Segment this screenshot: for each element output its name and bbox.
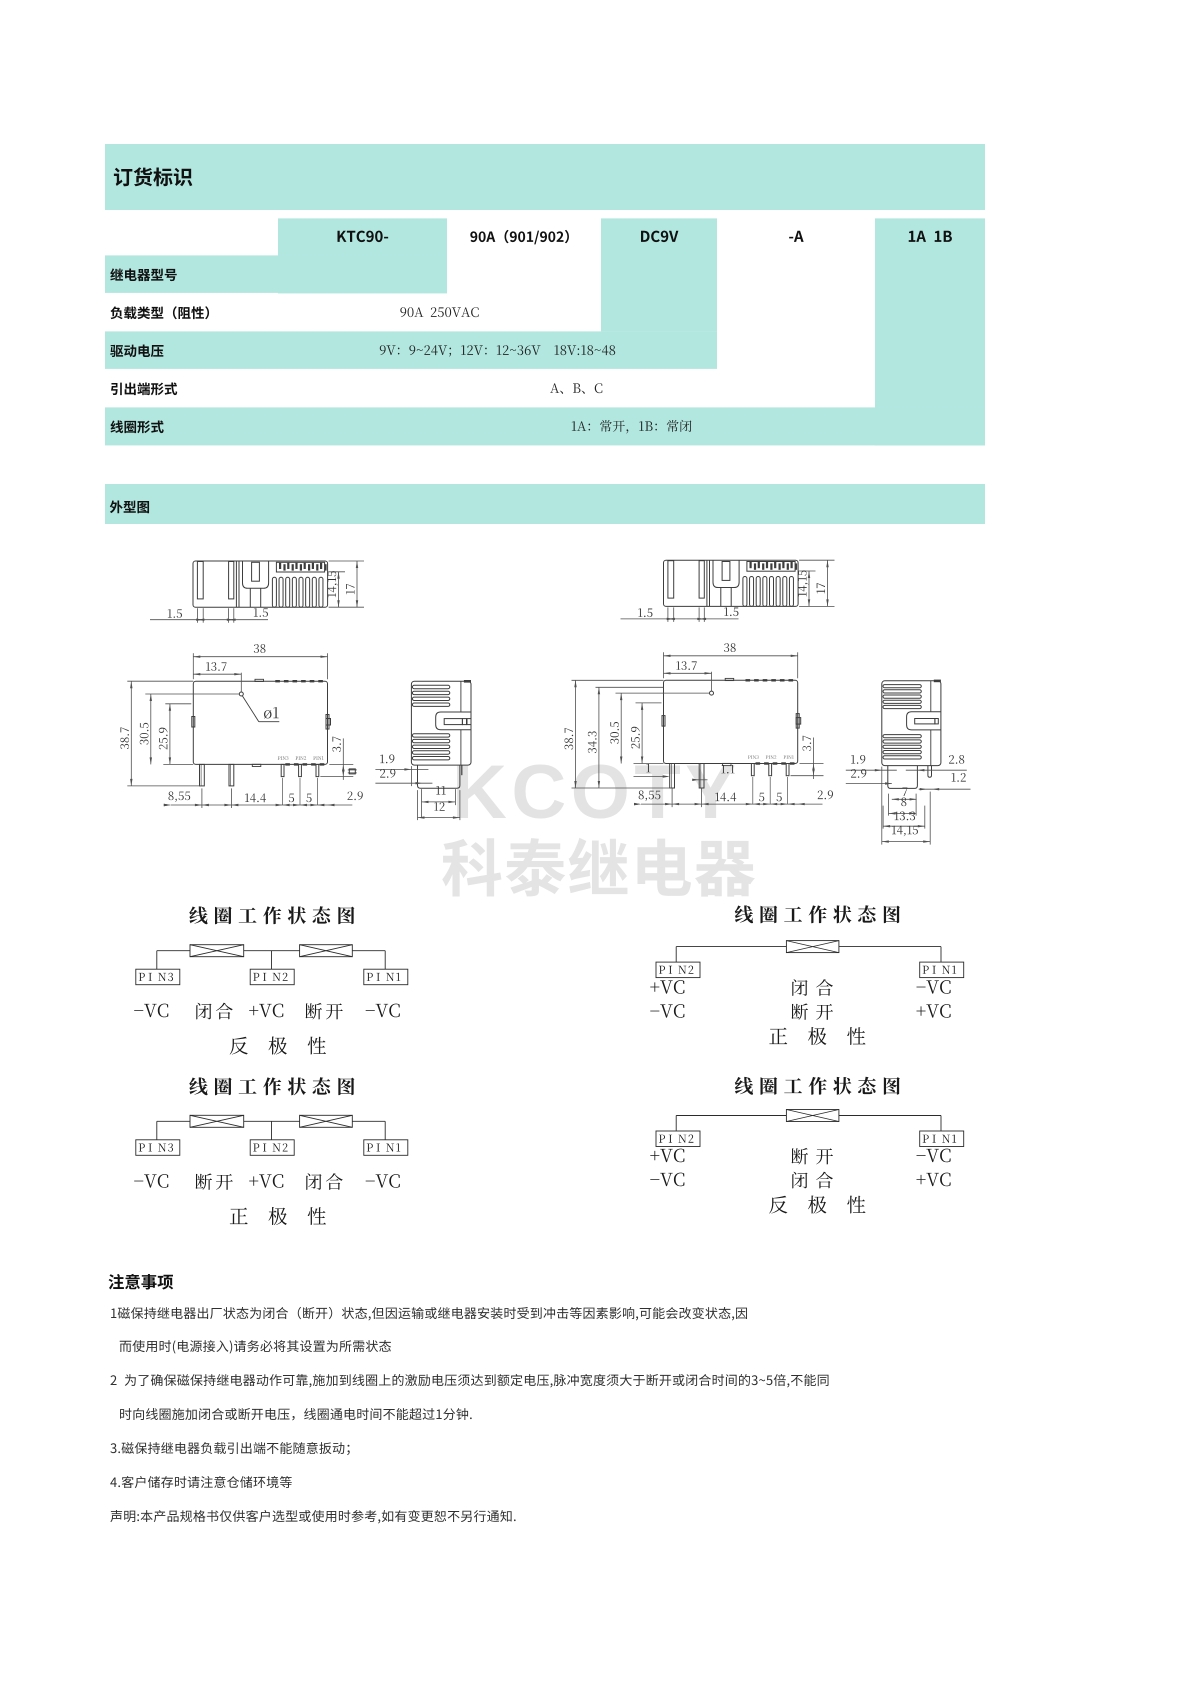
svg-text:KCOTY: KCOTY [452,750,741,835]
